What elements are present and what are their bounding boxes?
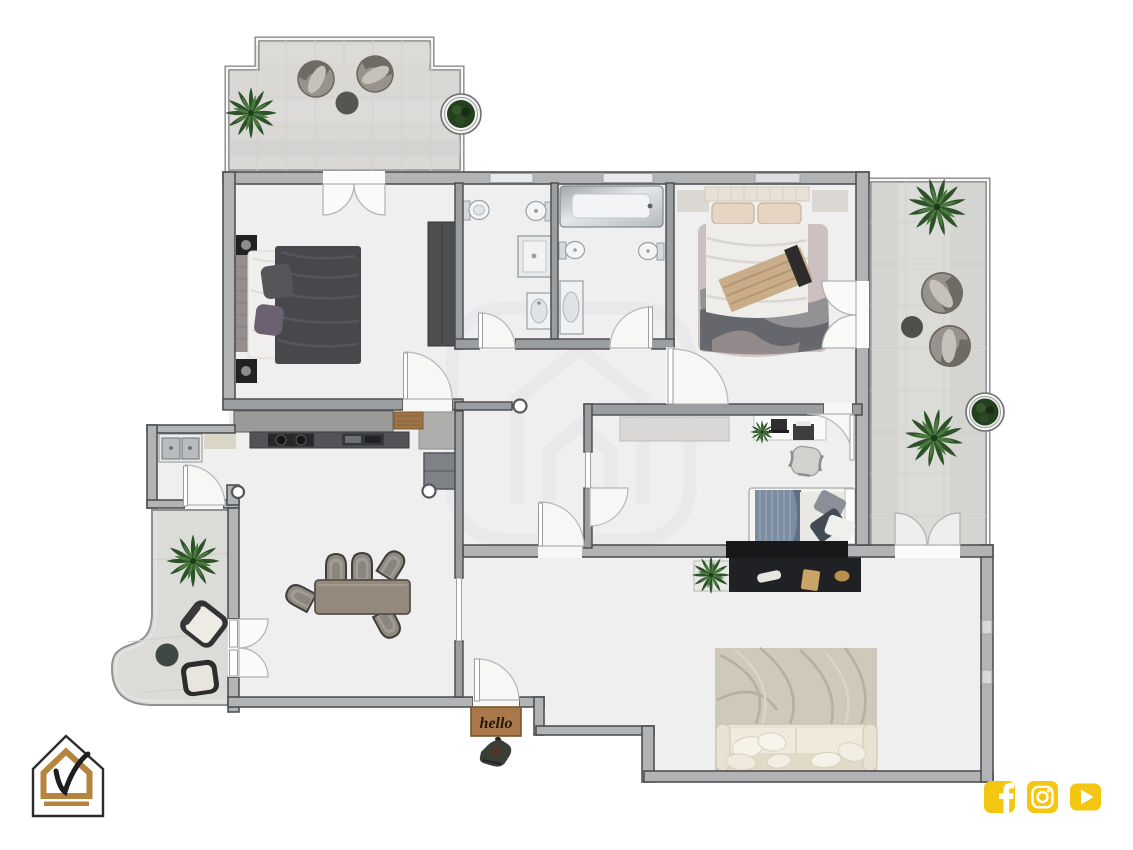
svg-text:hello: hello	[480, 715, 513, 732]
